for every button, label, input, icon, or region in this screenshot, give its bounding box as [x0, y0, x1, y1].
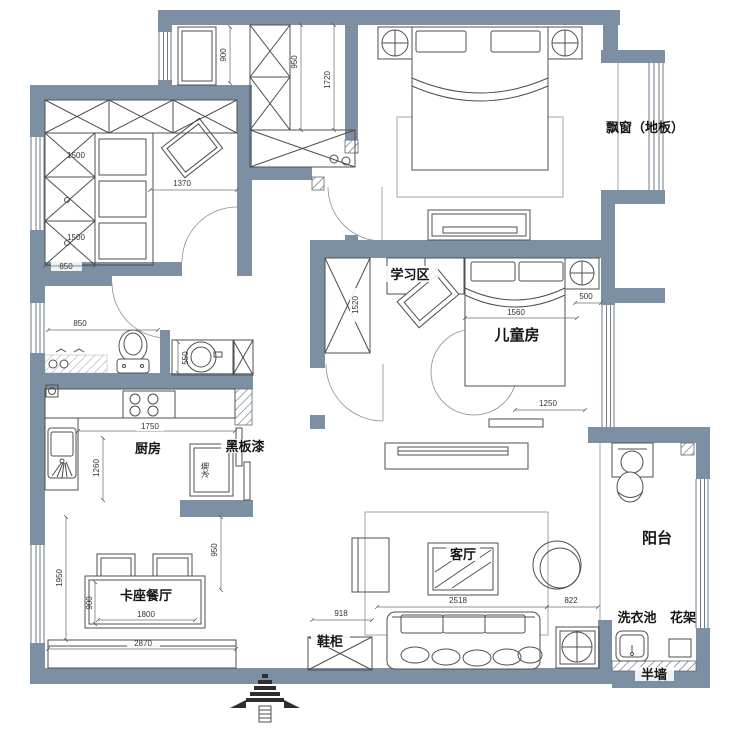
kitchen-sliding-door — [244, 462, 250, 500]
window-balcony — [695, 479, 709, 628]
label-shoe-cabinet: 鞋柜 — [317, 634, 343, 649]
master-bed — [412, 27, 548, 170]
master-tv — [443, 227, 517, 233]
dim-table-width: 1800 — [137, 610, 155, 619]
dim-dining-gap: 950 — [210, 543, 219, 557]
dim-bed-nook: 500 — [579, 292, 593, 301]
dim-wardrobe-b: 1500 — [67, 233, 85, 242]
pillar-hatch — [345, 140, 358, 153]
kids-room-furniture — [325, 258, 599, 427]
label-kitchen: 厨房 — [135, 441, 161, 456]
label-laundry-sink: 洗衣池 — [617, 610, 656, 625]
dim-kids-wardrobe: 1520 — [351, 296, 360, 314]
kitchen-sink — [48, 428, 76, 478]
dim-kids-tv-wall: 1250 — [539, 399, 557, 408]
dim-shoe-cab: 918 — [334, 609, 348, 618]
pillar-hatch — [312, 177, 324, 190]
label-blackboard-paint: 黑板漆 — [225, 439, 264, 454]
floor-plan: 1370 1500 1500 850 900 950 1720 1520 156… — [0, 0, 750, 747]
label-balcony: 阳台 — [642, 529, 672, 547]
window-kids-room — [601, 305, 615, 427]
dim-closet-width: 1370 — [173, 179, 191, 188]
dim-basin: 550 — [181, 351, 190, 365]
label-fridge: 冰箱 — [200, 462, 210, 478]
corner-pillar-hatch — [681, 443, 694, 455]
label-kids-room: 儿童房 — [493, 326, 539, 344]
dim-kids-bed-width: 1560 — [507, 308, 525, 317]
dim-bench: 2870 — [134, 639, 152, 648]
label-dining-booth: 卡座餐厅 — [120, 588, 172, 603]
label-half-wall: 半墙 — [641, 667, 667, 682]
master-bedroom-furniture — [378, 27, 582, 240]
window-entry-left — [158, 32, 172, 80]
label-living-room: 客厅 — [450, 547, 476, 562]
window-dining — [30, 545, 45, 643]
dim-wardrobe-a: 1500 — [67, 151, 85, 160]
pillar-hatch — [235, 389, 252, 425]
dim-sofa-gap: 822 — [564, 596, 578, 605]
shower-taps — [56, 349, 84, 352]
window-left-upper — [30, 137, 45, 230]
label-bay-window: 飘窗（地板） — [606, 120, 684, 135]
window-bathroom — [30, 303, 45, 353]
dim-closet-door: 850 — [59, 262, 73, 271]
dim-counter: 1750 — [141, 422, 159, 431]
dim-shower: 850 — [73, 319, 87, 328]
dim-entry-hall: 1720 — [323, 71, 332, 89]
dim-table-depth: 900 — [85, 596, 94, 610]
label-flower-rack: 花架 — [670, 610, 696, 625]
label-study-area: 学习区 — [390, 267, 429, 282]
dim-kitchen-depth: 1260 — [92, 459, 101, 477]
toilet — [119, 330, 147, 362]
flower-rack-box — [669, 639, 691, 657]
dim-entry-depth: 900 — [219, 48, 228, 62]
dim-entry-cab: 950 — [290, 55, 299, 69]
dim-sofa: 2518 — [449, 596, 467, 605]
dim-dining-wall: 1950 — [55, 569, 64, 587]
bathroom-furniture — [45, 330, 253, 375]
kids-shelf — [489, 419, 543, 427]
balcony-furniture — [612, 443, 691, 661]
